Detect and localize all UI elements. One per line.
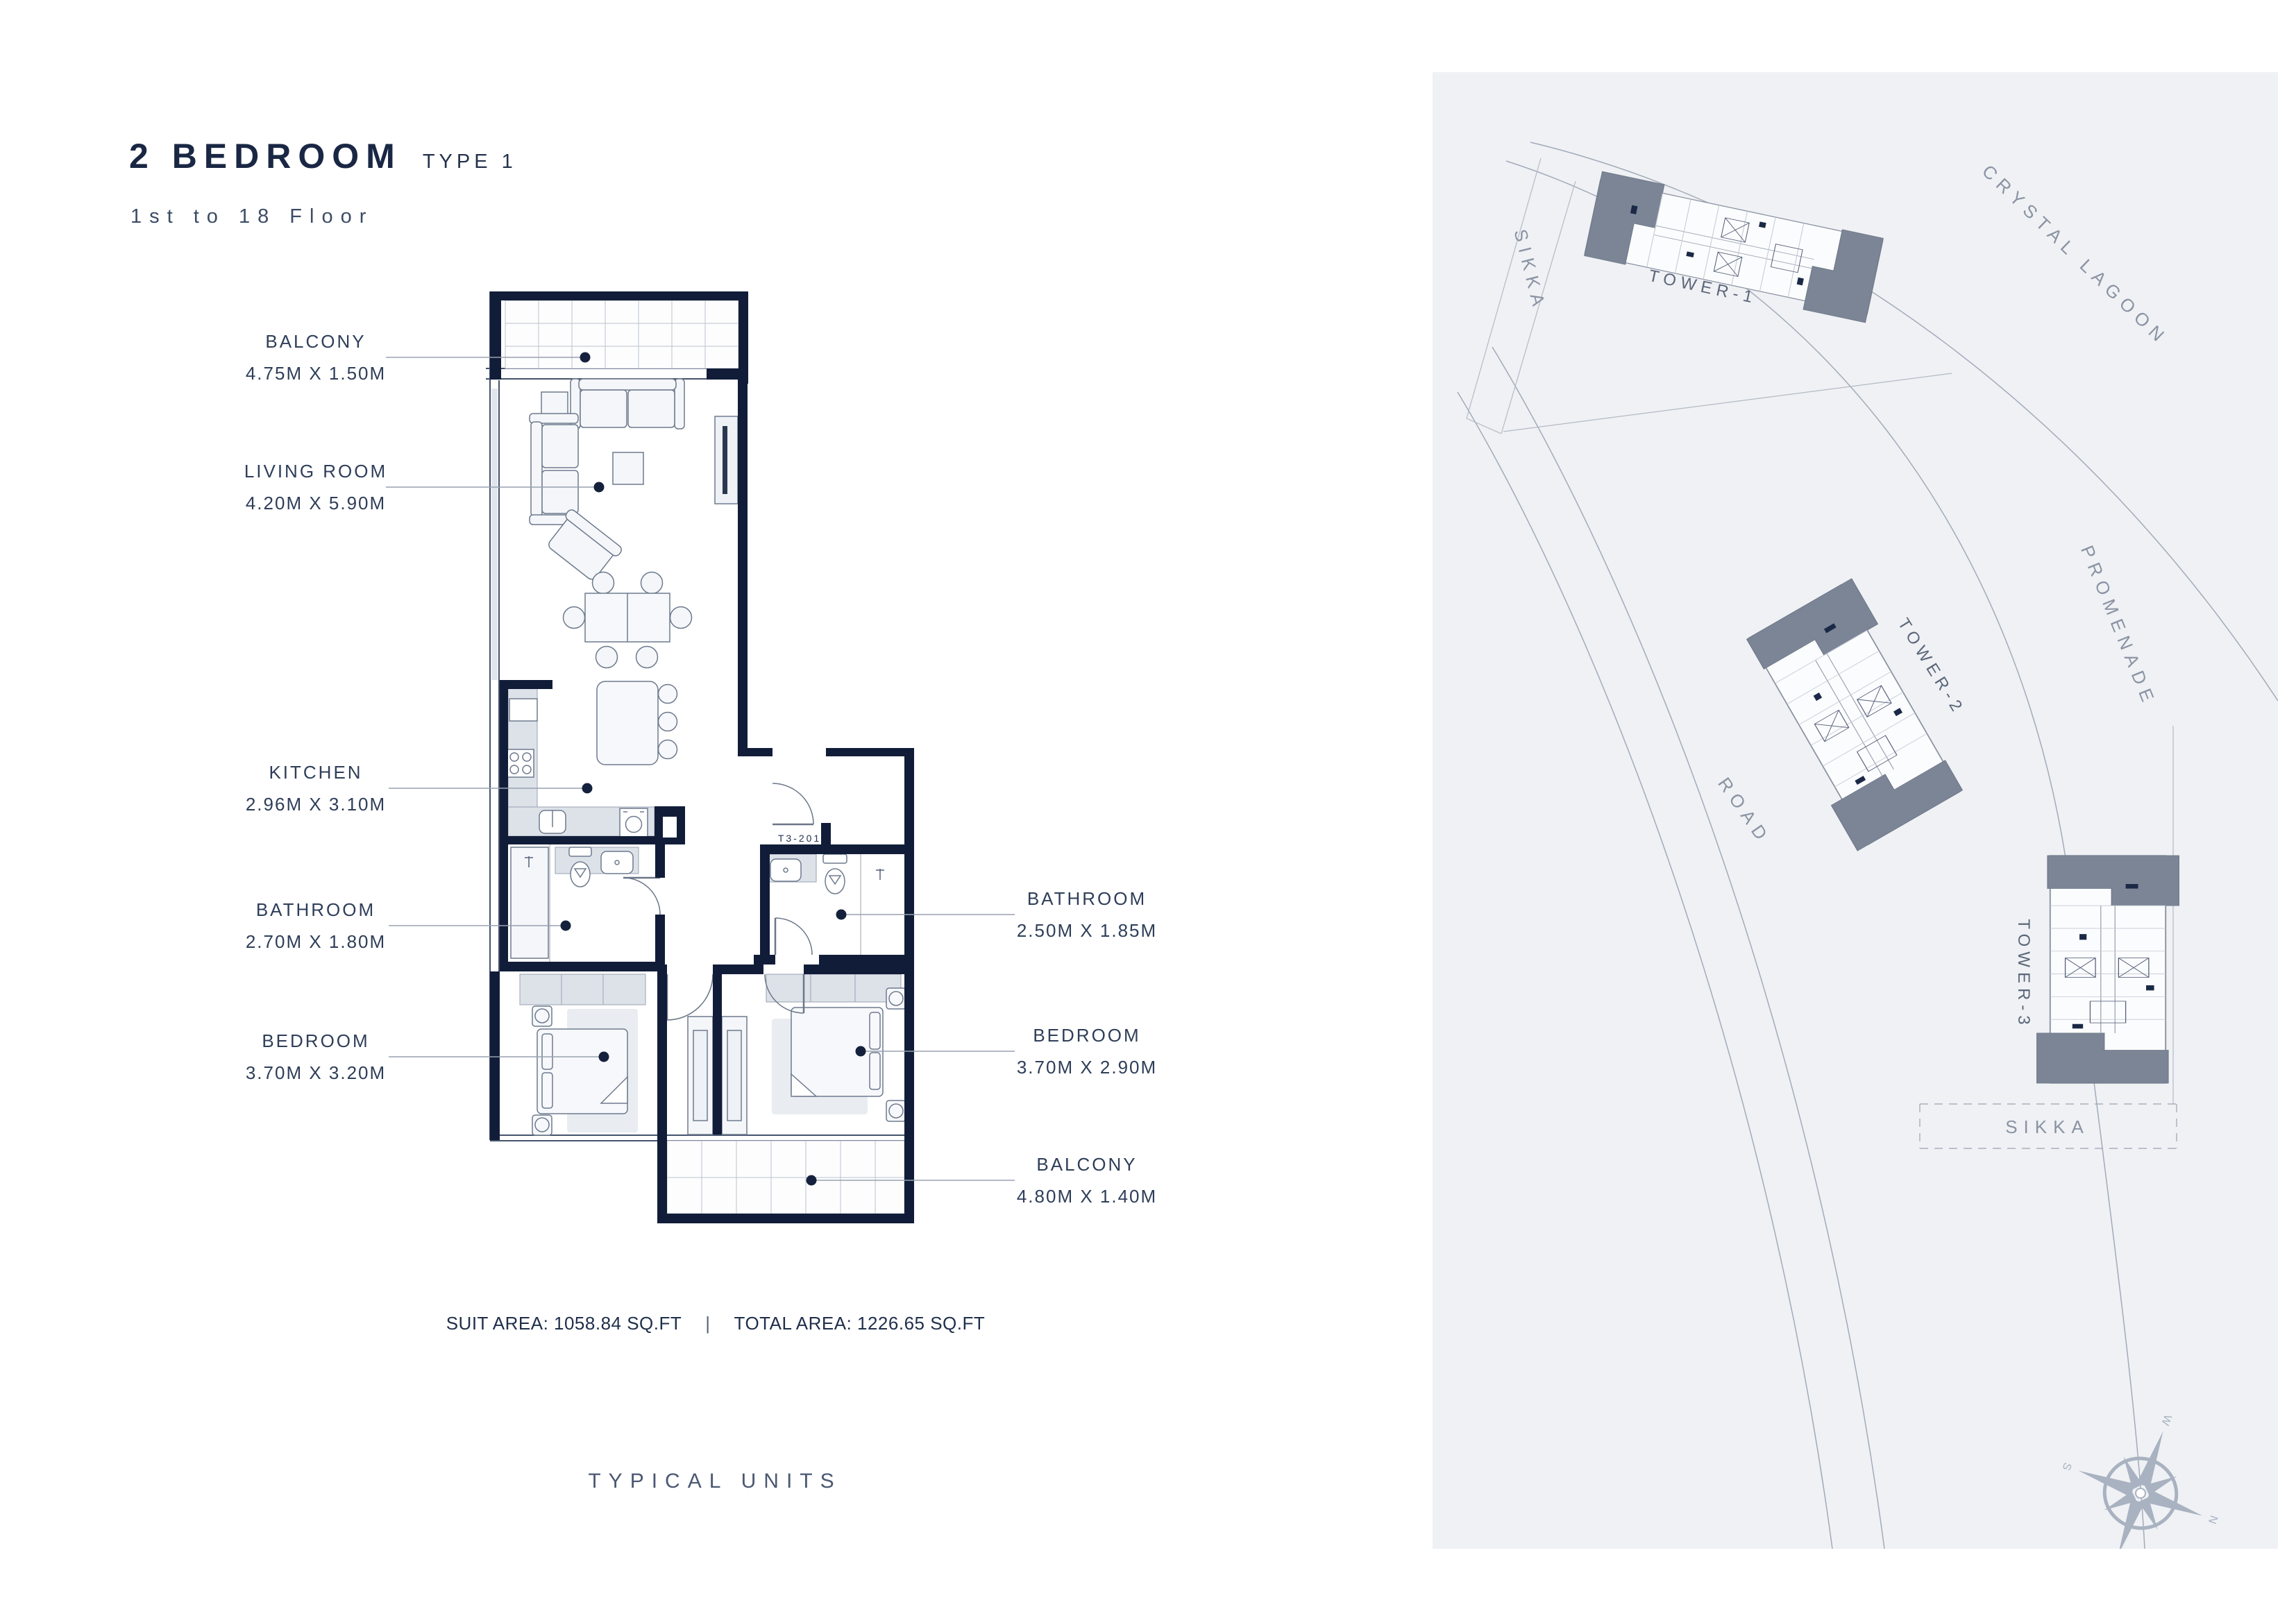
page-subtitle: 1st to 18 Floor	[130, 205, 373, 228]
page-title-type: TYPE 1	[423, 151, 517, 173]
room-labels-right: BATHROOM 2.50M X 1.85M BEDROOM 3.70M X 2…	[1017, 888, 1157, 1207]
dims-bedroom-2: 3.70M X 2.90M	[1017, 1057, 1157, 1078]
road-label: ROAD	[1714, 774, 1775, 849]
caption-typical-units: TYPICAL UNITS	[486, 1470, 944, 1493]
promenade-label: PROMENADE	[2077, 543, 2161, 711]
area-summary: SUIT AREA: 1058.84 SQ.FT | TOTAL AREA: 1…	[486, 1313, 945, 1334]
compass-icon: N E S W	[2033, 1386, 2246, 1549]
site-roads	[1458, 142, 2278, 1549]
page-title: 2 BEDROOM	[129, 136, 402, 176]
room-labels-left: BALCONY 4.75M X 1.50M LIVING ROOM 4.20M …	[244, 331, 387, 1083]
page-header: 2 BEDROOM TYPE 1	[129, 136, 517, 176]
bathroom2-fixtures	[770, 854, 884, 955]
shaft-notch	[663, 817, 677, 838]
label-balcony-top: BALCONY	[265, 331, 366, 352]
dims-bathroom-2: 2.50M X 1.85M	[1017, 920, 1157, 941]
label-bathroom-2: BATHROOM	[1027, 888, 1147, 909]
unit-floor-plan: T3-201 BALCONY 4.75M X 1.50M LIVING ROOM…	[229, 278, 1256, 1263]
dims-bedroom-1: 3.70M X 3.20M	[246, 1062, 386, 1083]
tower-3-footprint	[2037, 856, 2179, 1083]
floor-plate-panel: TOWER-1 TOWER-2 TOWER-3 CRYSTAL LAGOON P…	[1433, 72, 2278, 1549]
dims-bathroom-1: 2.70M X 1.80M	[246, 931, 386, 952]
label-bathroom-1: BATHROOM	[256, 899, 375, 920]
label-bedroom-1: BEDROOM	[262, 1030, 369, 1051]
compass-n: N	[2206, 1513, 2220, 1525]
page: 2 BEDROOM TYPE 1 1st to 18 Floor	[0, 0, 2296, 1623]
living-room-furniture	[530, 379, 738, 584]
crystal-lagoon-label: CRYSTAL LAGOON	[1978, 160, 2173, 349]
compass-w: W	[2159, 1413, 2173, 1427]
total-area-text: TOTAL AREA: 1226.65 SQ.FT	[734, 1313, 986, 1334]
tower-2-footprint	[1738, 579, 1971, 851]
window-sill	[491, 389, 498, 680]
dims-balcony-top: 4.75M X 1.50M	[246, 363, 386, 384]
label-balcony-bottom: BALCONY	[1036, 1154, 1137, 1175]
balcony-top-grid	[505, 300, 738, 368]
dims-living-room: 4.20M X 5.90M	[246, 493, 386, 513]
bedroom1-furniture	[532, 1006, 638, 1135]
tower-3-label: TOWER-3	[2014, 919, 2033, 1029]
balcony-bottom-grid	[667, 1141, 904, 1214]
label-kitchen: KITCHEN	[269, 762, 362, 783]
site-map: TOWER-1 TOWER-2 TOWER-3 CRYSTAL LAGOON P…	[1433, 72, 2278, 1549]
compass-s: S	[2060, 1461, 2074, 1472]
unit-code-label: T3-201	[778, 833, 821, 844]
sikka-left-label: SIKKA	[1510, 227, 1551, 314]
bedroom2-furniture	[772, 988, 906, 1121]
sikka-bottom-label: SIKKA	[2005, 1116, 2090, 1137]
area-separator: |	[705, 1313, 710, 1334]
dims-balcony-bottom: 4.80M X 1.40M	[1017, 1186, 1157, 1207]
suit-area-text: SUIT AREA: 1058.84 SQ.FT	[446, 1313, 682, 1334]
dining-set	[564, 572, 692, 668]
label-bedroom-2: BEDROOM	[1033, 1025, 1140, 1046]
label-living-room: LIVING ROOM	[244, 461, 387, 482]
kitchen-island	[597, 681, 677, 765]
dims-kitchen: 2.96M X 3.10M	[246, 794, 386, 815]
